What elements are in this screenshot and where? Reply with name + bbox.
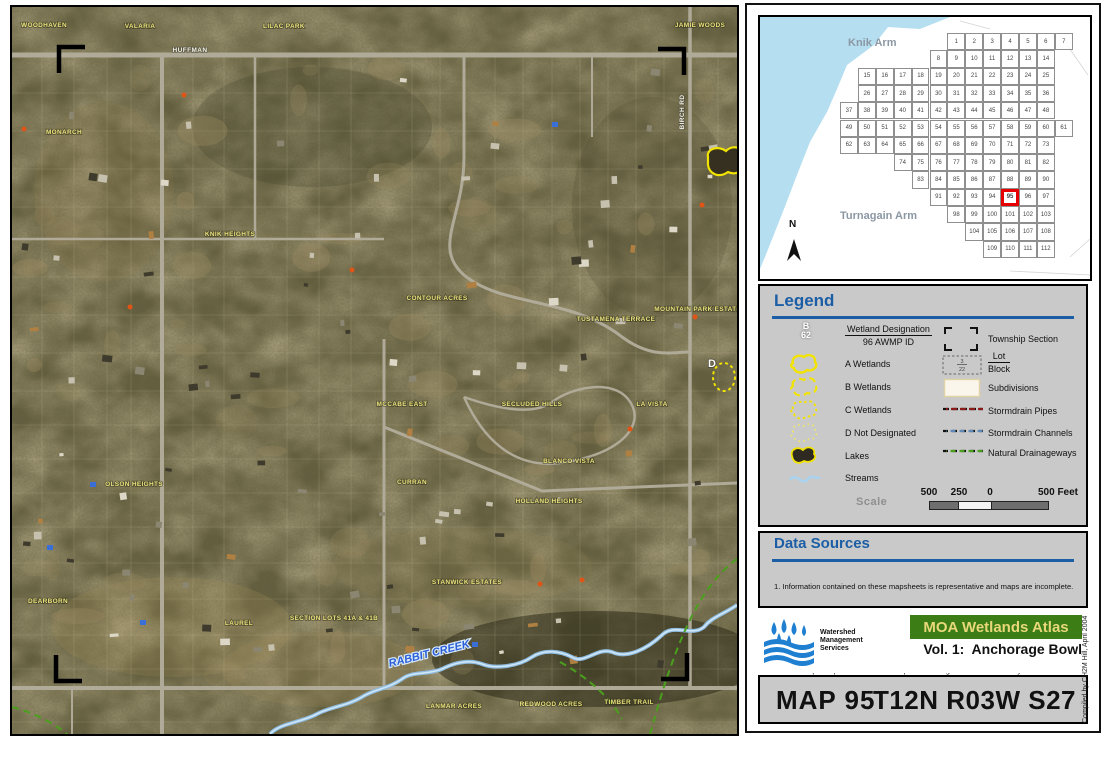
svg-text:22: 22: [959, 367, 965, 373]
index-cell-3: 3: [983, 33, 1001, 50]
index-cell-54: 54: [930, 120, 948, 137]
b-wetlands-label: B Wetlands: [845, 382, 891, 392]
stormdrain-channels-label: Stormdrain Channels: [988, 428, 1073, 438]
streams-label: Streams: [845, 473, 879, 483]
branding-strip: Watershed Management Services MOA Wetlan…: [758, 611, 1088, 673]
index-cell-75: 75: [912, 154, 930, 171]
index-cell-91: 91: [930, 189, 948, 206]
map-label-sub: LANMAR ACRES: [426, 703, 482, 710]
data-sources-rule: [772, 559, 1074, 562]
index-cell-20: 20: [947, 68, 965, 85]
lakes-label: Lakes: [845, 451, 869, 461]
map-label-sub: SECTION LOTS 41A & 41B: [290, 615, 378, 622]
map-label-wet: D: [708, 358, 716, 370]
wetland-designation-sample: B62: [794, 322, 818, 340]
map-label-sub: WOODHAVEN: [21, 22, 67, 29]
index-cell-93: 93: [965, 189, 983, 206]
index-cell-62: 62: [840, 137, 858, 154]
index-cell-83: 83: [912, 171, 930, 188]
lakes-swatch: [788, 443, 822, 469]
map-label-sub: STANWICK ESTATES: [432, 579, 503, 586]
index-cell-112: 112: [1037, 241, 1055, 258]
index-cell-34: 34: [1001, 85, 1019, 102]
index-cell-67: 67: [930, 137, 948, 154]
index-cell-5: 5: [1019, 33, 1037, 50]
index-cell-86: 86: [965, 171, 983, 188]
index-cell-90: 90: [1037, 171, 1055, 188]
atlas-title: MOA Wetlands Atlas: [910, 615, 1082, 639]
b-wetland-swatch: [788, 375, 822, 399]
data-sources: Data Sources 1. Information contained on…: [758, 531, 1088, 608]
index-cell-69: 69: [965, 137, 983, 154]
index-cell-51: 51: [876, 120, 894, 137]
index-cell-10: 10: [965, 50, 983, 67]
index-cell-16: 16: [876, 68, 894, 85]
index-cell-88: 88: [1001, 171, 1019, 188]
index-cell-55: 55: [947, 120, 965, 137]
index-cell-111: 111: [1019, 241, 1037, 258]
streams-swatch: [788, 468, 822, 488]
map-label-sub: CURRAN: [397, 479, 427, 486]
index-cell-2: 2: [965, 33, 983, 50]
index-cell-107: 107: [1019, 223, 1037, 240]
index-cell-63: 63: [858, 137, 876, 154]
map-label-sub: JAMIE WOODS: [675, 22, 726, 29]
index-cell-8: 8: [930, 50, 948, 67]
map-label-sub: LA VISTA: [636, 401, 667, 408]
knik-arm-label: Knik Arm: [848, 37, 897, 49]
map-id-strip: MAP 95 T12N R03W S27: [758, 675, 1088, 724]
map-number: MAP 95: [776, 685, 875, 716]
index-cell-47: 47: [1019, 102, 1037, 119]
index-cell-64: 64: [876, 137, 894, 154]
index-cell-38: 38: [858, 102, 876, 119]
index-cell-19: 19: [930, 68, 948, 85]
index-cell-103: 103: [1037, 206, 1055, 223]
index-cell-108: 108: [1037, 223, 1055, 240]
index-cell-94: 94: [983, 189, 1001, 206]
index-cell-102: 102: [1019, 206, 1037, 223]
index-cell-41: 41: [912, 102, 930, 119]
d-wetland-swatch: [788, 421, 822, 445]
index-cell-76: 76: [930, 154, 948, 171]
index-cell-4: 4: [1001, 33, 1019, 50]
map-label-sub: KNIK HEIGHTS: [205, 231, 256, 238]
index-cell-61: 61: [1055, 120, 1073, 137]
data-sources-title: Data Sources: [774, 535, 870, 552]
map-label-sub: CONTOUR ACRES: [407, 295, 468, 302]
index-cell-27: 27: [876, 85, 894, 102]
map-label-sub: SECLUDED HILLS: [502, 401, 563, 408]
index-cell-14: 14: [1037, 50, 1055, 67]
scale-bar: [929, 501, 1049, 510]
index-cell-1: 1: [947, 33, 965, 50]
township-section-swatch: [943, 326, 979, 352]
map-label-sub: LAUREL: [225, 620, 253, 627]
index-map: 1234567891011121314151617181920212223242…: [758, 15, 1092, 281]
index-cell-65: 65: [894, 137, 912, 154]
index-cell-30: 30: [930, 85, 948, 102]
stormdrain-pipes-swatch: [941, 404, 985, 414]
map-label-sub: MCCABE EAST: [377, 401, 428, 408]
index-cell-81: 81: [1019, 154, 1037, 171]
atlas-sheet: WOODHAVENVALARIALILAC PARKJAMIE WOODSMON…: [0, 0, 1103, 782]
index-cell-22: 22: [983, 68, 1001, 85]
index-cell-52: 52: [894, 120, 912, 137]
lot-block-swatch: 3 22: [941, 354, 983, 376]
map-label-sub: HOLLAND HEIGHTS: [516, 498, 583, 505]
natural-drainageways-label: Natural Drainageways: [988, 448, 1077, 458]
index-cell-89: 89: [1019, 171, 1037, 188]
index-cell-18: 18: [912, 68, 930, 85]
index-cell-78: 78: [965, 154, 983, 171]
index-cell-6: 6: [1037, 33, 1055, 50]
note-line: 1. Information contained on these mapshe…: [774, 582, 1080, 591]
index-cell-104: 104: [965, 223, 983, 240]
lot-block-label: LotBlock: [988, 351, 1010, 374]
map-label-sub: REDWOOD ACRES: [520, 701, 583, 708]
index-cell-73: 73: [1037, 137, 1055, 154]
map-label-sub: DEARBORN: [28, 598, 68, 605]
stormdrain-pipes-label: Stormdrain Pipes: [988, 406, 1057, 416]
index-cell-46: 46: [1001, 102, 1019, 119]
index-cell-70: 70: [983, 137, 1001, 154]
index-cell-13: 13: [1019, 50, 1037, 67]
subdivisions-swatch: [943, 378, 981, 398]
index-cell-60: 60: [1037, 120, 1055, 137]
township-code: T12N R03W S27: [873, 685, 1076, 716]
index-cell-95: 95: [1001, 189, 1019, 206]
index-cell-36: 36: [1037, 85, 1055, 102]
index-cell-17: 17: [894, 68, 912, 85]
index-cell-26: 26: [858, 85, 876, 102]
c-wetland-swatch: [788, 398, 822, 422]
turnagain-arm-label: Turnagain Arm: [840, 210, 917, 222]
index-cell-68: 68: [947, 137, 965, 154]
map-label-street: BIRCH RD: [679, 95, 686, 130]
scale-tick-500l: 500: [921, 487, 938, 498]
map-label-sub: BLANCO VISTA: [543, 458, 595, 465]
index-cell-87: 87: [983, 171, 1001, 188]
index-cell-32: 32: [965, 85, 983, 102]
index-cell-57: 57: [983, 120, 1001, 137]
index-cell-15: 15: [858, 68, 876, 85]
c-wetlands-label: C Wetlands: [845, 405, 891, 415]
index-cell-100: 100: [983, 206, 1001, 223]
credit-text: Compiled by CH2M Hill, April 2004: [1082, 616, 1089, 723]
index-cell-77: 77: [947, 154, 965, 171]
index-cell-56: 56: [965, 120, 983, 137]
legend-rule: [772, 316, 1074, 319]
stormdrain-channels-swatch: [941, 426, 985, 436]
index-cell-84: 84: [930, 171, 948, 188]
township-section-label: Township Section: [988, 334, 1058, 344]
index-cell-53: 53: [912, 120, 930, 137]
index-cell-43: 43: [947, 102, 965, 119]
natural-drainageways-swatch: [941, 446, 985, 456]
index-cell-80: 80: [1001, 154, 1019, 171]
map-label-sub: MOUNTAIN PARK ESTATES: [654, 306, 737, 313]
index-cell-92: 92: [947, 189, 965, 206]
index-cell-105: 105: [983, 223, 1001, 240]
index-cell-50: 50: [858, 120, 876, 137]
volume-title: Vol. 1: Anchorage Bowl: [923, 641, 1082, 657]
aerial-map-image: WOODHAVENVALARIALILAC PARKJAMIE WOODSMON…: [12, 7, 737, 734]
index-cell-44: 44: [965, 102, 983, 119]
index-cell-106: 106: [1001, 223, 1019, 240]
index-cell-45: 45: [983, 102, 1001, 119]
index-cell-21: 21: [965, 68, 983, 85]
index-cell-101: 101: [1001, 206, 1019, 223]
aerial-map-panel: WOODHAVENVALARIALILAC PARKJAMIE WOODSMON…: [10, 5, 739, 736]
index-cell-33: 33: [983, 85, 1001, 102]
index-cell-110: 110: [1001, 241, 1019, 258]
map-label-sub: VALARIA: [125, 23, 156, 30]
index-cell-37: 37: [840, 102, 858, 119]
d-not-designated-label: D Not Designated: [845, 428, 916, 438]
index-cell-98: 98: [947, 206, 965, 223]
map-label-street: HUFFMAN: [173, 47, 208, 54]
index-cell-24: 24: [1019, 68, 1037, 85]
index-cell-49: 49: [840, 120, 858, 137]
north-label: N: [789, 219, 796, 230]
index-cell-12: 12: [1001, 50, 1019, 67]
index-cell-109: 109: [983, 241, 1001, 258]
org-name: Watershed Management Services: [820, 629, 863, 653]
index-cell-40: 40: [894, 102, 912, 119]
index-cell-66: 66: [912, 137, 930, 154]
map-label-sub: LILAC PARK: [263, 23, 305, 30]
index-cell-85: 85: [947, 171, 965, 188]
scale-tick-0: 0: [987, 487, 993, 498]
index-cell-35: 35: [1019, 85, 1037, 102]
index-cell-58: 58: [1001, 120, 1019, 137]
index-cell-11: 11: [983, 50, 1001, 67]
watershed-logo-icon: [762, 616, 816, 668]
a-wetlands-label: A Wetlands: [845, 359, 890, 369]
scale-tick-250: 250: [951, 487, 968, 498]
index-cell-97: 97: [1037, 189, 1055, 206]
index-cell-25: 25: [1037, 68, 1055, 85]
index-cell-74: 74: [894, 154, 912, 171]
map-label-sub: OLSON HEIGHTS: [105, 481, 163, 488]
lake-wetland: [708, 147, 737, 175]
map-label-sub: TUSTAMENA TERRACE: [577, 316, 656, 323]
a-wetland-swatch: [788, 352, 822, 376]
index-cell-79: 79: [983, 154, 1001, 171]
index-cell-82: 82: [1037, 154, 1055, 171]
index-cell-23: 23: [1001, 68, 1019, 85]
index-cell-39: 39: [876, 102, 894, 119]
map-label-sub: MONARCH: [46, 129, 82, 136]
index-cell-9: 9: [947, 50, 965, 67]
scale-label: Scale: [856, 496, 887, 508]
map-label-sub: TIMBER TRAIL: [604, 699, 653, 706]
wetland-designation-label: Wetland Designation96 AWMP ID: [845, 324, 932, 347]
index-cell-71: 71: [1001, 137, 1019, 154]
index-cell-7: 7: [1055, 33, 1073, 50]
index-cell-96: 96: [1019, 189, 1037, 206]
legend-title: Legend: [774, 291, 834, 311]
side-panel: 1234567891011121314151617181920212223242…: [745, 3, 1101, 733]
index-cell-99: 99: [965, 206, 983, 223]
index-cell-72: 72: [1019, 137, 1037, 154]
index-cell-59: 59: [1019, 120, 1037, 137]
index-cell-29: 29: [912, 85, 930, 102]
subdivisions-label: Subdivisions: [988, 383, 1039, 393]
scale-tick-500r: 500 Feet: [1038, 487, 1078, 498]
svg-text:3: 3: [960, 359, 963, 365]
legend: Legend B62 Wetland Designation96 AWMP ID…: [758, 284, 1088, 527]
index-cell-28: 28: [894, 85, 912, 102]
index-cell-31: 31: [947, 85, 965, 102]
index-cell-42: 42: [930, 102, 948, 119]
index-cell-48: 48: [1037, 102, 1055, 119]
